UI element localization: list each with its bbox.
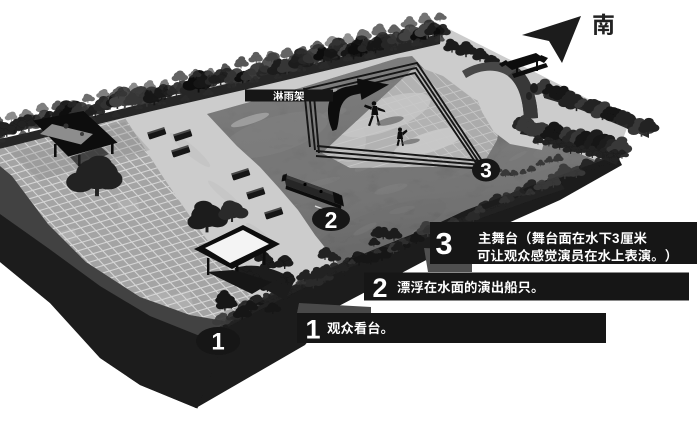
- svg-text:1: 1: [305, 315, 320, 345]
- svg-text:3: 3: [612, 231, 619, 246]
- svg-text:2: 2: [372, 273, 387, 303]
- svg-text:3: 3: [480, 160, 492, 183]
- svg-text:1: 1: [211, 329, 224, 356]
- svg-text:2: 2: [325, 207, 338, 233]
- svg-text:3: 3: [435, 226, 452, 261]
